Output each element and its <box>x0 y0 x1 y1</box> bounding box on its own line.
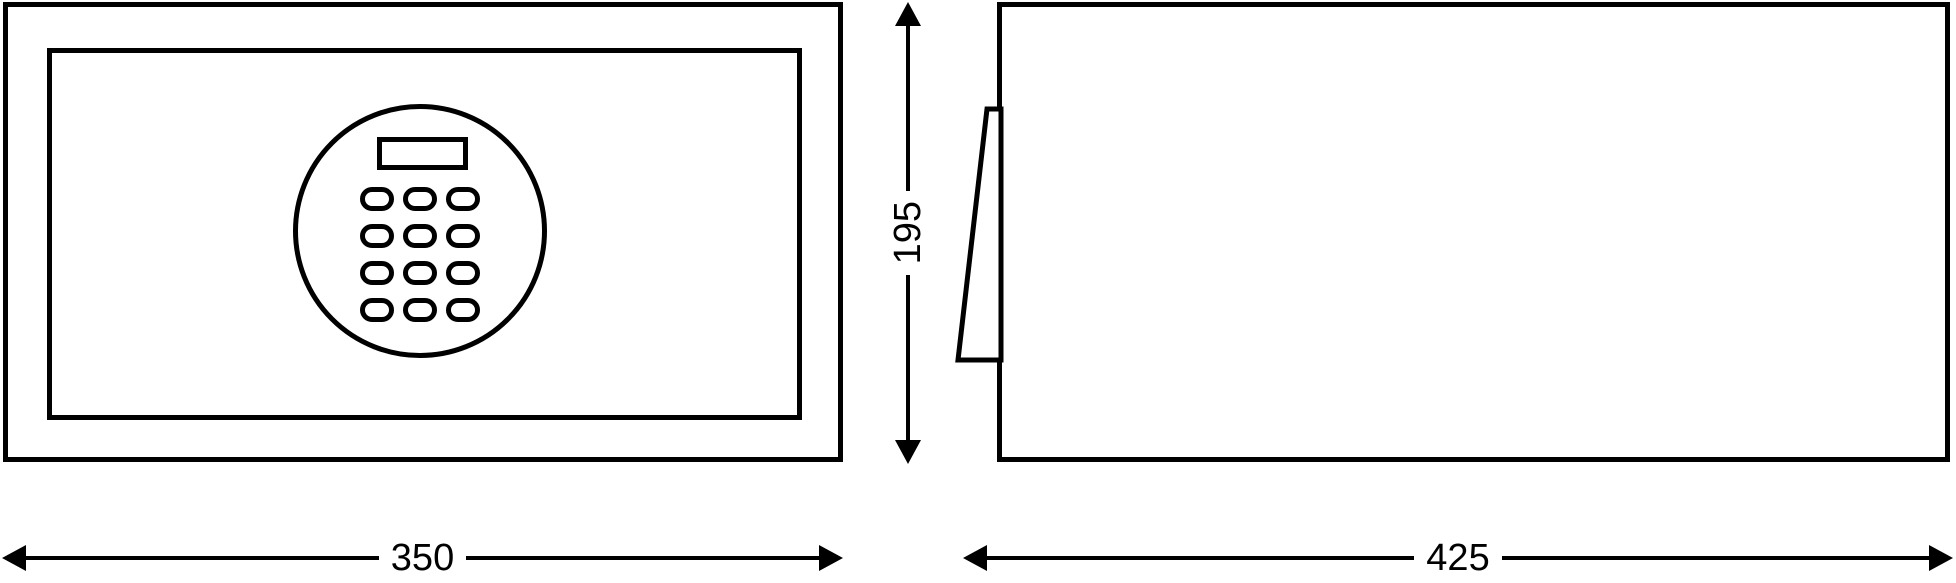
height-dimension: 195 <box>895 2 921 464</box>
keypad-display <box>377 137 468 170</box>
dimension-line <box>26 556 379 560</box>
dimension-arrow-right-icon <box>819 545 843 571</box>
dimension-arrow-down-icon <box>895 440 921 464</box>
keypad-button <box>360 261 394 285</box>
keypad-button <box>446 224 480 248</box>
keypad-button <box>446 298 480 322</box>
dimension-line <box>906 275 910 440</box>
keypad-button <box>446 187 480 211</box>
dimension-arrow-right-icon <box>1929 545 1953 571</box>
door-edge-shape <box>958 109 1001 360</box>
dimension-line <box>906 26 910 191</box>
dimension-line <box>987 556 1414 560</box>
keypad-button <box>360 224 394 248</box>
keypad-button <box>403 261 437 285</box>
dimension-line <box>1502 556 1929 560</box>
keypad-button-grid <box>360 187 480 322</box>
keypad-button <box>360 298 394 322</box>
depth-dimension-label: 425 <box>1426 539 1489 577</box>
width-dimension: 350 <box>2 545 843 571</box>
keypad-button <box>360 187 394 211</box>
keypad-button <box>446 261 480 285</box>
height-dimension-label: 195 <box>889 201 927 264</box>
keypad-button <box>403 187 437 211</box>
depth-dimension: 425 <box>963 545 1953 571</box>
dimension-arrow-left-icon <box>2 545 26 571</box>
keypad-button <box>403 224 437 248</box>
keypad-button <box>403 298 437 322</box>
dimension-arrow-left-icon <box>963 545 987 571</box>
dimension-arrow-up-icon <box>895 2 921 26</box>
door-edge-profile <box>950 100 1008 368</box>
safe-dimension-drawing: 195 350 425 <box>0 0 1956 583</box>
dimension-line <box>466 556 819 560</box>
safe-front-view <box>3 2 843 462</box>
safe-side-view <box>997 2 1950 462</box>
width-dimension-label: 350 <box>391 539 454 577</box>
